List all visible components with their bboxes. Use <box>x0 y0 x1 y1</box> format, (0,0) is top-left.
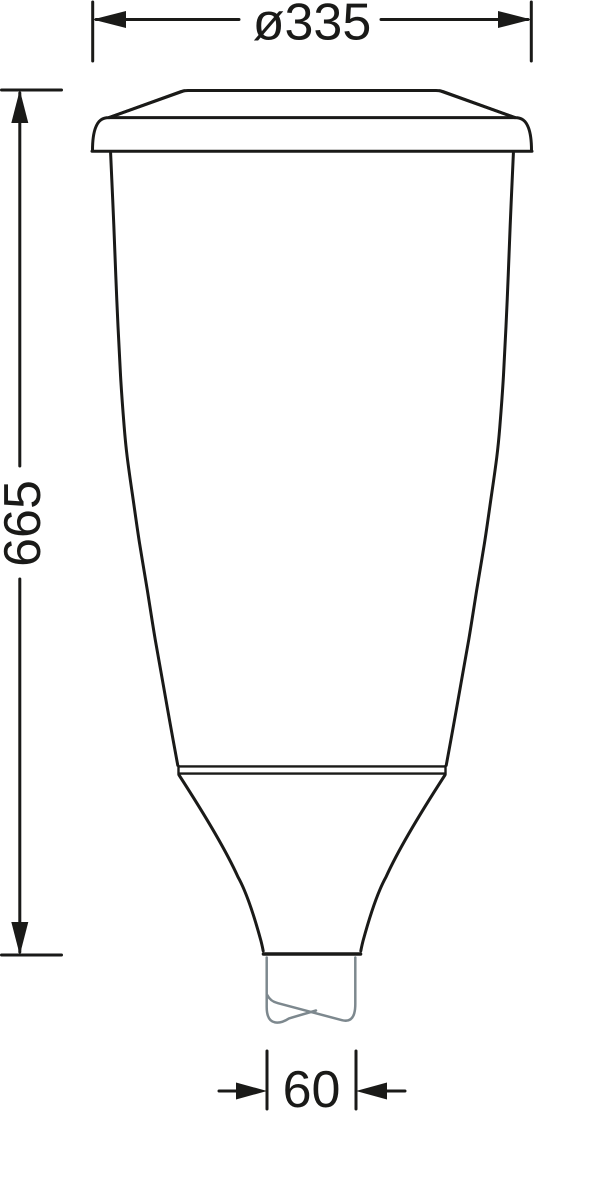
svg-text:60: 60 <box>283 1061 341 1119</box>
svg-text:665: 665 <box>0 480 52 567</box>
svg-text:ø335: ø335 <box>253 0 372 52</box>
